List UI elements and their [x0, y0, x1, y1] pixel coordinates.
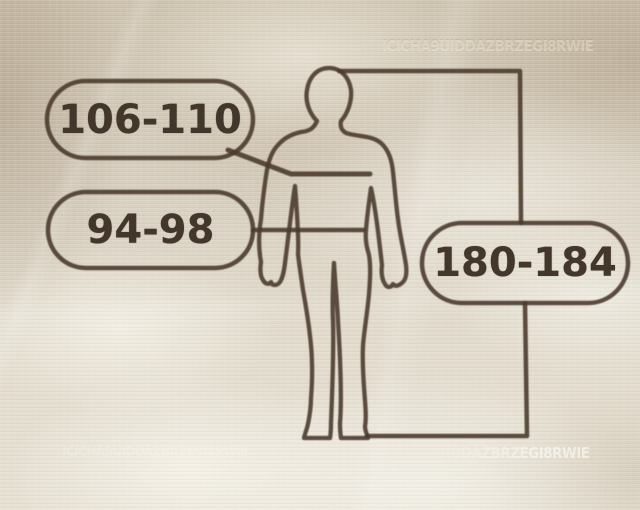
height-measurement-label: 180-184 [422, 223, 628, 303]
packaging-photo: ICICHA9UIDDAZBRZEGI8RWIE 106-110 94-98 1… [0, 0, 640, 510]
height-bracket-top [339, 71, 521, 223]
body-outline-figure [259, 68, 406, 438]
chest-measurement-label: 106-110 [47, 81, 253, 158]
height-bracket-bottom [367, 303, 527, 436]
waist-measurement-label: 94-98 [48, 192, 253, 268]
watermark-text-bottom: ICICHA9UIDDAZBRZEGI8RWIE [378, 444, 589, 462]
watermark-text-bottom-left: ICICHA9UIDDAZBRZEGI8RWIE [62, 445, 248, 460]
